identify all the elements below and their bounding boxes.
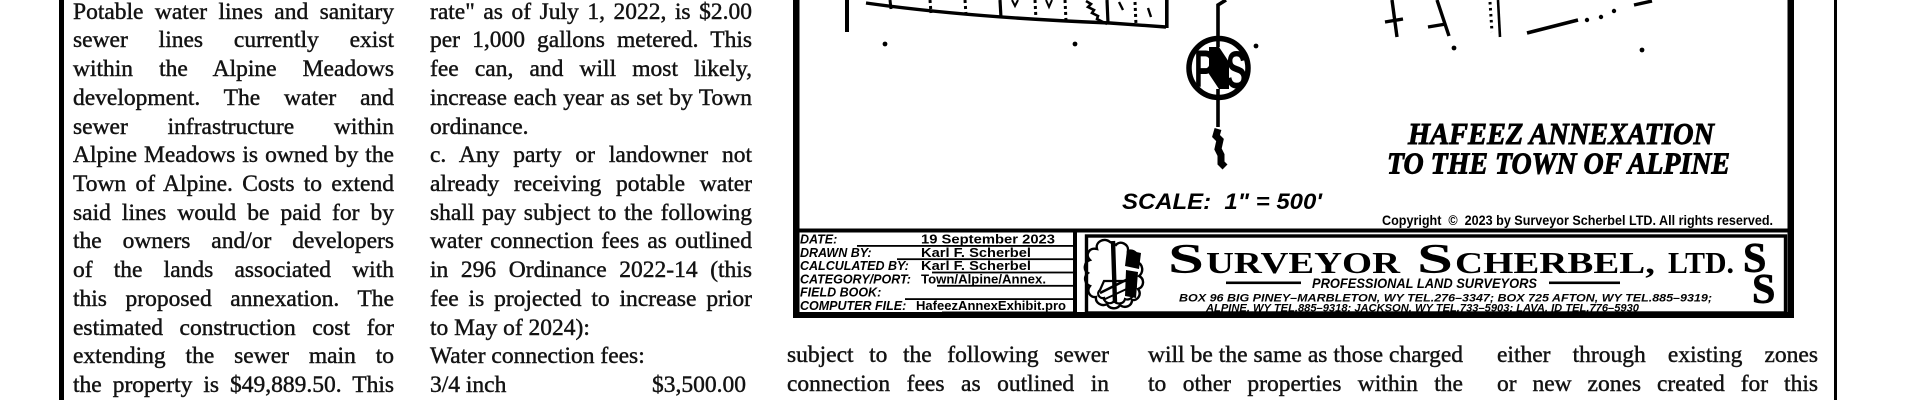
svg-text:S: S xyxy=(1168,237,1204,283)
svg-text:SCALE: 1" = 500': SCALE: 1" = 500' xyxy=(1122,189,1323,214)
svg-text:DRAWN BY:: DRAWN BY: xyxy=(800,246,872,260)
svg-text:COMPUTER FILE:: COMPUTER FILE: xyxy=(800,299,906,313)
svg-text:LTD.: LTD. xyxy=(1668,245,1734,280)
svg-text:DATE:: DATE: xyxy=(800,233,837,247)
svg-text:CALCULATED BY:: CALCULATED BY: xyxy=(800,259,909,273)
svg-text:S: S xyxy=(1226,41,1247,100)
svg-text:CATEGORY/PORT:: CATEGORY/PORT: xyxy=(800,272,911,286)
svg-text:S: S xyxy=(1752,267,1775,313)
svg-text:Copyright © 2023 by Surveyor: Copyright © 2023 by Surveyor Scherbel LT… xyxy=(1382,213,1773,228)
svg-text:HafeezAnnexExhibit.pro: HafeezAnnexExhibit.pro xyxy=(916,298,1066,313)
svg-text:ALPINE, WY TEL.885–9318; JACK: ALPINE, WY TEL.885–9318; JACKSON, WY TEL… xyxy=(1205,303,1640,315)
svg-text:PROFESSIONAL LAND SURVEYORS: PROFESSIONAL LAND SURVEYORS xyxy=(1312,275,1538,291)
svg-text:Town/Alpine/Annex.: Town/Alpine/Annex. xyxy=(921,271,1046,286)
svg-text:TO THE TOWN OF ALPINE: TO THE TOWN OF ALPINE xyxy=(1387,146,1730,181)
svg-text:FIELD BOOK:: FIELD BOOK: xyxy=(800,286,881,300)
